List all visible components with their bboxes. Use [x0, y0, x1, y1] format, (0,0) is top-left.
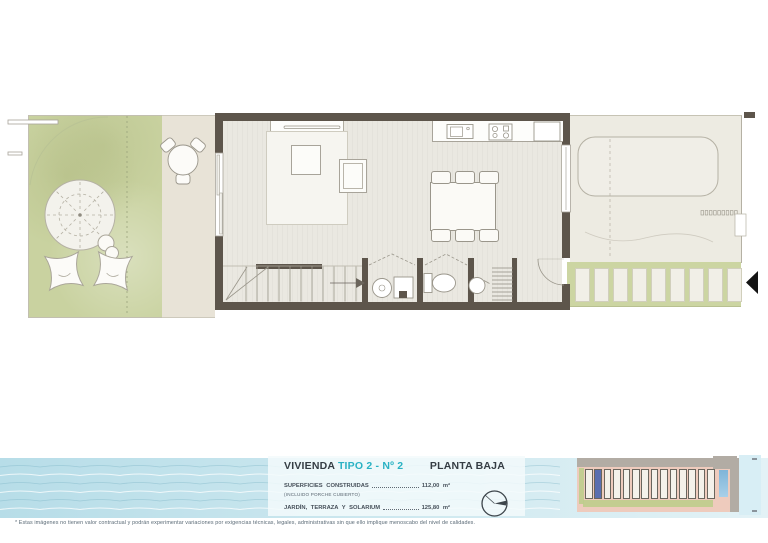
- walkway-pad: [632, 268, 647, 302]
- walkway-pad: [689, 268, 704, 302]
- dotted-leader: [372, 487, 419, 488]
- wall-right-mid: [562, 212, 570, 258]
- wall-bottom: [215, 302, 570, 310]
- plan-name: PLANTA BAJA: [430, 460, 505, 472]
- entrance-arrow-icon: [746, 271, 758, 294]
- site-key-plan: [573, 454, 763, 516]
- dotted-leader: [383, 509, 418, 510]
- siteplan-unit: [632, 469, 640, 499]
- siteplan-unit: [670, 469, 678, 499]
- side-table-inner: [343, 163, 363, 189]
- siteplan-unit: [613, 469, 621, 499]
- area-sublabel: (INCLUIDO PORCHE CUBIERTO): [284, 492, 360, 497]
- coffee-table: [291, 145, 321, 175]
- siteplan-unit: [651, 469, 659, 499]
- siteplan-unit: [604, 469, 612, 499]
- stair-handrail: [256, 264, 322, 269]
- siteplan-road: [730, 458, 739, 512]
- wall-divider-2: [417, 258, 423, 302]
- unit-title-accent: TIPO 2 - Nº 2: [338, 460, 403, 472]
- sliding-door: [216, 153, 224, 236]
- wall-divider-1: [362, 258, 368, 302]
- plan-sheet: VIVIENDA TIPO 2 - Nº 2 PLANTA BAJA SUPER…: [0, 0, 768, 543]
- walkway-pad: [708, 268, 723, 302]
- north-arrow-icon: [480, 489, 509, 518]
- area-label: JARDÍN, TERRAZA Y SOLARIUM: [284, 505, 380, 511]
- wall-left-upper: [215, 113, 223, 153]
- front-terrace: [570, 115, 742, 263]
- wall-divider-3: [468, 258, 474, 302]
- wall-right-lower: [562, 284, 570, 310]
- siteplan-unit: [679, 469, 687, 499]
- unit-title: VIVIENDA TIPO 2 - Nº 2: [284, 460, 403, 472]
- area-row: JARDÍN, TERRAZA Y SOLARIUM 125,80 m²: [284, 505, 450, 511]
- siteplan-unit-highlighted: [594, 469, 602, 499]
- walkway-pad: [727, 268, 742, 302]
- siteplan-unit: [623, 469, 631, 499]
- siteplan-unit: [707, 469, 715, 499]
- wall-left-lower: [215, 236, 223, 310]
- siteplan-unit: [698, 469, 706, 499]
- side-table: [339, 159, 367, 193]
- siteplan-unit: [688, 469, 696, 499]
- kitchen-counter: [432, 121, 563, 142]
- siteplan-unit: [641, 469, 649, 499]
- dining-chair: [431, 171, 451, 184]
- walkway-pad: [613, 268, 628, 302]
- wall-right-upper: [562, 113, 570, 145]
- area-label: SUPERFICIES CONSTRUIDAS: [284, 483, 369, 489]
- wall-top: [215, 113, 570, 121]
- entrance-walkway: [567, 262, 741, 307]
- floor-plan: [0, 0, 768, 455]
- area-row: SUPERFICIES CONSTRUIDAS 112,00 m²: [284, 483, 450, 489]
- siteplan-unit: [585, 469, 593, 499]
- siteplan-label-mark: [752, 510, 757, 512]
- dining-chair: [431, 229, 451, 242]
- siteplan-sea: [739, 455, 761, 515]
- walkway-pad: [575, 268, 590, 302]
- wall-divider-4: [512, 258, 517, 302]
- walkway-pad: [594, 268, 609, 302]
- dining-table: [430, 182, 496, 231]
- area-value: 112,00 m²: [422, 483, 450, 489]
- garden-lawn: [28, 115, 163, 318]
- area-value: 125,80 m²: [422, 505, 450, 511]
- dining-chair: [455, 229, 475, 242]
- siteplan-unit: [660, 469, 668, 499]
- dining-chair: [455, 171, 475, 184]
- dining-chair: [479, 171, 499, 184]
- title-block: VIVIENDA TIPO 2 - Nº 2 PLANTA BAJA SUPER…: [268, 456, 525, 516]
- siteplan-label-mark: [752, 458, 757, 460]
- siteplan-pool: [719, 470, 728, 497]
- walkway-pad: [651, 268, 666, 302]
- unit-title-main: VIVIENDA: [284, 460, 335, 472]
- walkway-pad: [670, 268, 685, 302]
- dining-chair: [479, 229, 499, 242]
- covered-porch: [162, 115, 215, 318]
- disclaimer-text: * Estas imágenes no tienen valor contrac…: [15, 520, 475, 526]
